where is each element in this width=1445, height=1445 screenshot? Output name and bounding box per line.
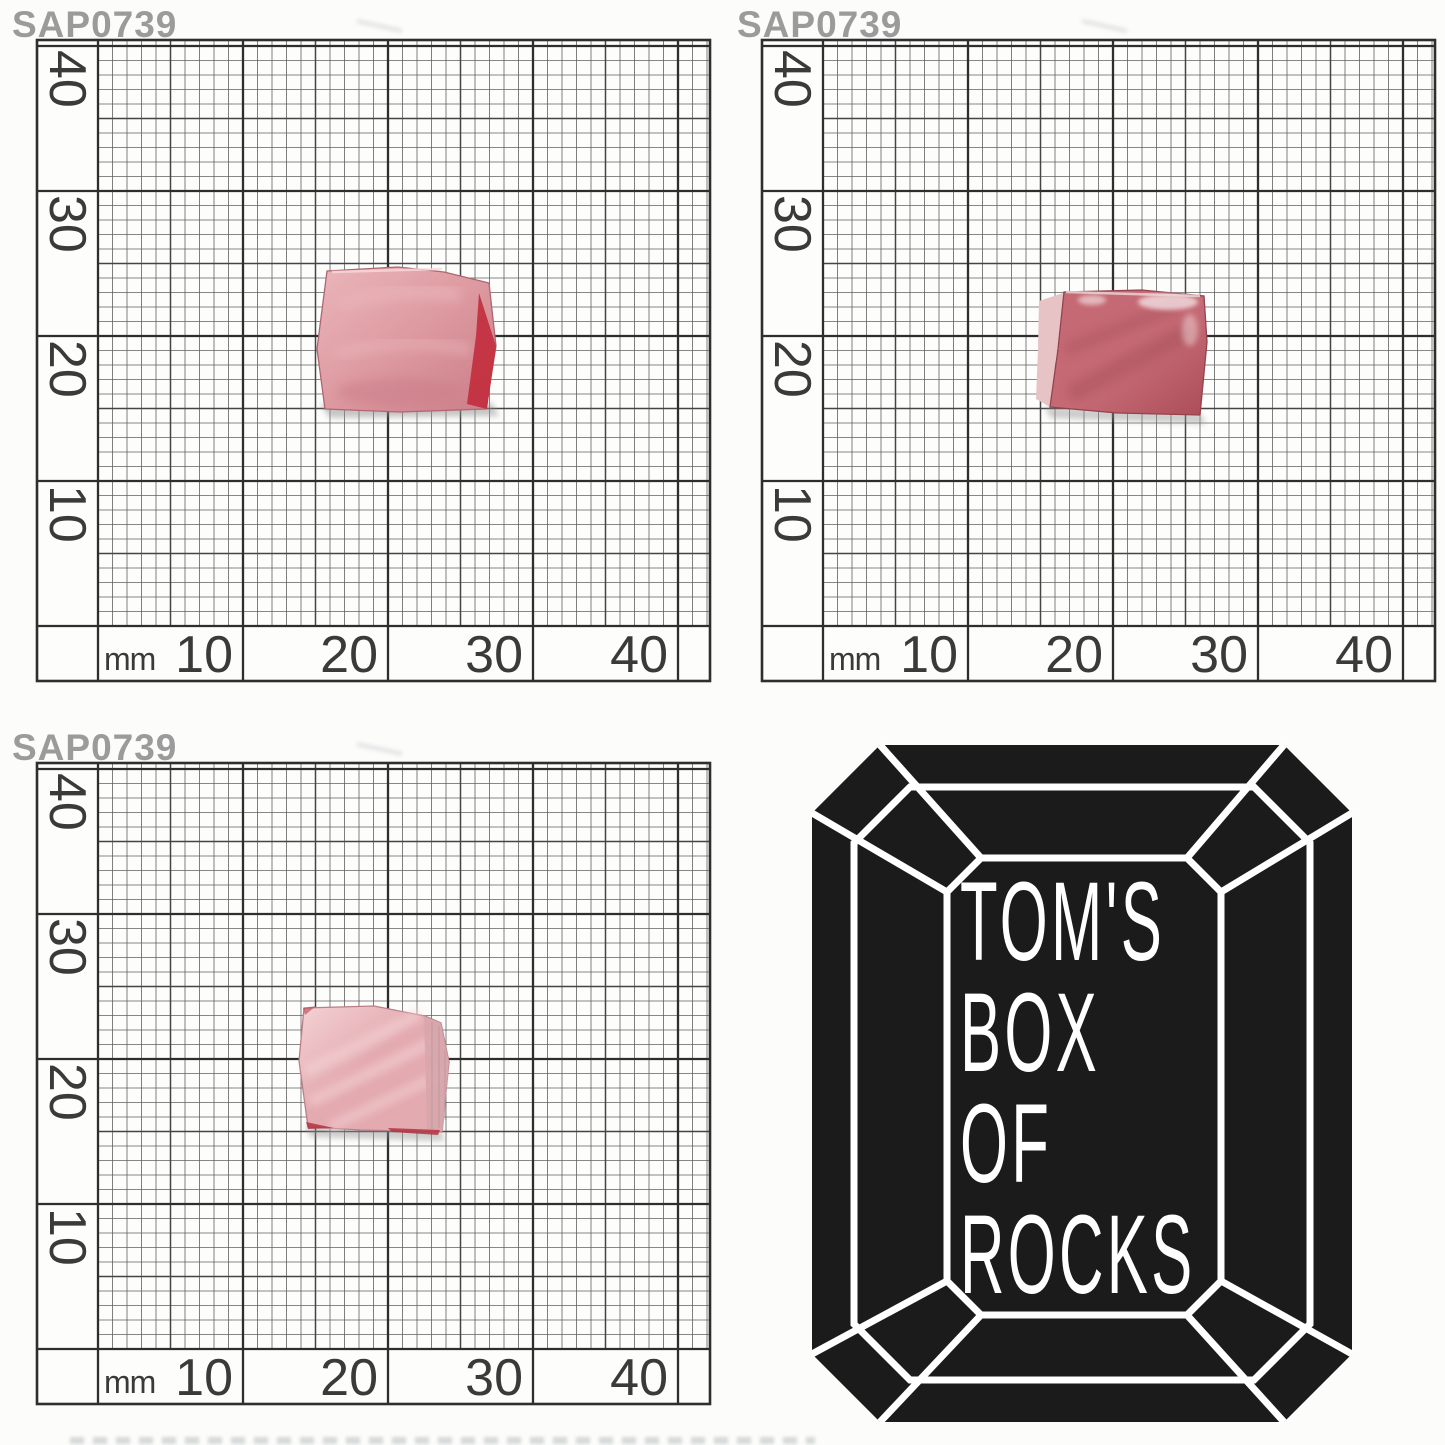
bottom-axis-label: 20 (320, 1349, 378, 1407)
left-axis-label: 20 (38, 340, 96, 398)
left-axis-label: 10 (38, 485, 96, 543)
watermark-code-bottom-left: SAP0739 (12, 729, 177, 766)
stone-photo-top-left (317, 267, 499, 418)
left-axis-label: 30 (38, 195, 96, 253)
left-axis-label: 30 (763, 195, 821, 253)
stone-photo-top-right (1036, 290, 1207, 424)
bottom-axis-label: 40 (1335, 626, 1393, 684)
unit-label: mm (104, 641, 155, 677)
bottom-axis-label: 20 (320, 626, 378, 684)
cut-off-caption-strip (70, 1437, 815, 1444)
bottom-axis-label: 30 (465, 1349, 523, 1407)
watermark-code-top-right: SAP0739 (737, 6, 902, 43)
left-axis-label: 40 (38, 773, 96, 831)
logo-text-line: BOX (960, 971, 1100, 1096)
stone-photo-bottom-left (299, 1006, 449, 1141)
scene-graphic: 40302010mm1020304040302010mm102030404030… (0, 0, 1445, 1445)
left-axis-label: 20 (763, 340, 821, 398)
left-axis-label: 40 (763, 50, 821, 108)
bottom-axis-label: 20 (1045, 626, 1103, 684)
bottom-axis-label: 40 (610, 1349, 668, 1407)
logo-text-line: TOM'S (960, 860, 1165, 985)
watermark-code-top-left: SAP0739 (12, 6, 177, 43)
bottom-axis-label: 10 (175, 626, 233, 684)
logo-text-line: ROCKS (960, 1193, 1196, 1318)
logo-text-line: OF (960, 1082, 1052, 1207)
left-axis-label: 20 (38, 1063, 96, 1121)
left-axis-label: 30 (38, 918, 96, 976)
bottom-axis-label: 30 (1190, 626, 1248, 684)
bottom-axis-label: 10 (900, 626, 958, 684)
left-axis-label: 10 (38, 1208, 96, 1266)
bottom-axis-label: 10 (175, 1349, 233, 1407)
left-axis-label: 10 (763, 485, 821, 543)
bottom-axis-label: 30 (465, 626, 523, 684)
bottom-axis-label: 40 (610, 626, 668, 684)
photo-collage: 40302010mm1020304040302010mm102030404030… (0, 0, 1445, 1445)
unit-label: mm (104, 1364, 155, 1400)
unit-label: mm (829, 641, 880, 677)
toms-box-of-rocks-logo: TOM'SBOXOFROCKS (812, 745, 1352, 1422)
left-axis-label: 40 (38, 50, 96, 108)
